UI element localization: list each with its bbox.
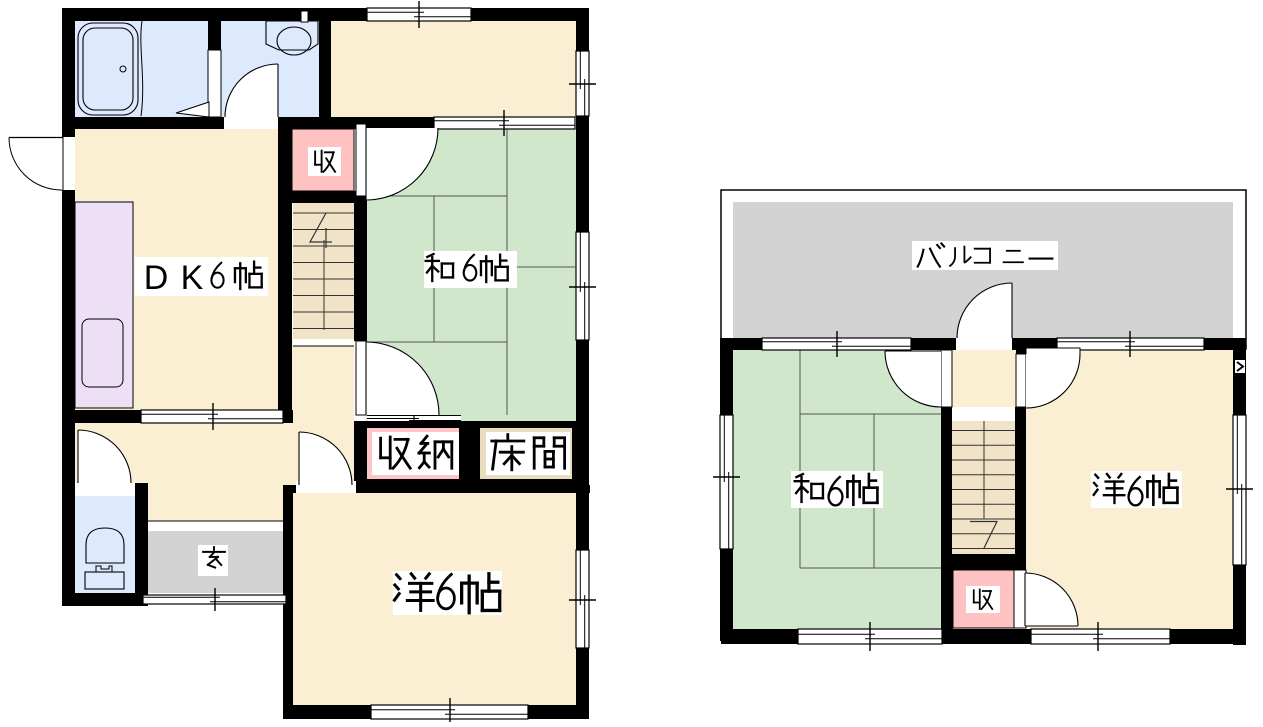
svg-text:K: K: [181, 259, 204, 297]
svg-text:D: D: [144, 259, 169, 297]
